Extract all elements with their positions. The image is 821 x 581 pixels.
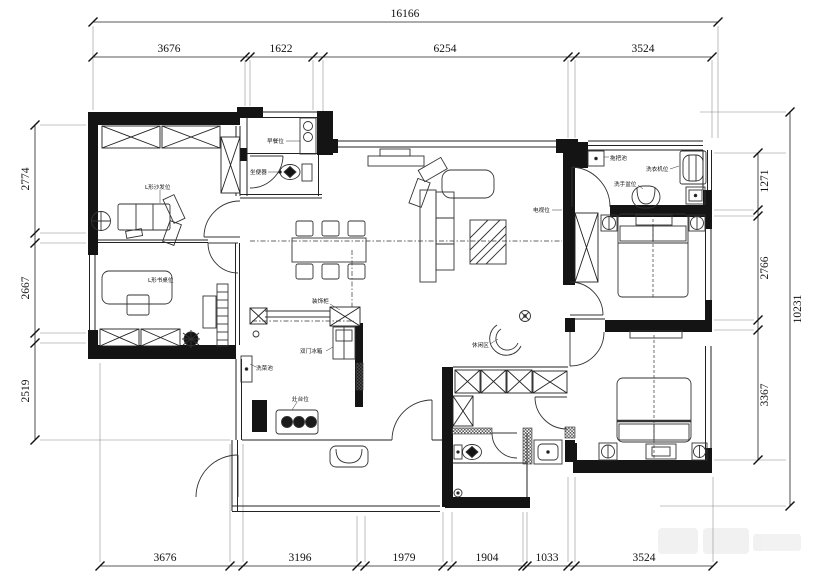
label-tv: 电视位 — [533, 206, 550, 214]
dim-right-1: 1271 — [759, 169, 771, 192]
dryer — [686, 187, 705, 204]
bed-1 — [618, 214, 688, 297]
laundry-basin — [632, 186, 660, 208]
shower-drain — [454, 489, 462, 497]
dim-top-3: 6254 — [434, 43, 457, 55]
dining-table-set — [292, 221, 366, 279]
floor-plan-canvas: 16166 3676 1622 6254 3524 2774 2667 2519… — [0, 0, 821, 581]
dim-top-2: 1622 — [270, 43, 293, 55]
dim-right-total: 10231 — [792, 294, 804, 323]
kitchen-counter — [265, 311, 330, 317]
closet-box — [481, 370, 506, 393]
leisure-chair — [490, 325, 521, 355]
fridge — [333, 327, 355, 359]
floor-plan: 16166 3676 1622 6254 3524 2774 2667 2519… — [0, 0, 821, 581]
windows-and-partitions — [90, 112, 712, 512]
toilet-fixture-2 — [454, 445, 482, 460]
rug — [470, 220, 506, 264]
dimension-bottom: 3676 3196 1979 1904 1033 3524 — [96, 552, 718, 571]
dim-top-4: 3524 — [632, 43, 655, 55]
wardrobes — [100, 126, 598, 426]
dimension-right: 1271 2766 3367 10231 — [754, 108, 805, 511]
dim-top-total: 16166 — [391, 8, 420, 20]
door-balcony-tr — [572, 167, 610, 207]
label-breakfast: 早餐位 — [267, 137, 284, 145]
wardrobe-box — [100, 329, 139, 346]
bathroom-sink — [534, 440, 562, 464]
closet-box — [533, 371, 567, 393]
bookshelf — [217, 284, 228, 346]
door-corridor — [535, 397, 567, 429]
bed-2 — [617, 335, 691, 458]
bench — [646, 444, 676, 459]
label-veg-sink: 洗菜池 — [256, 364, 273, 372]
wardrobe-box — [141, 329, 180, 346]
dim-top-1: 3676 — [158, 43, 181, 55]
dimension-left: 2774 2667 2519 — [20, 121, 40, 445]
decor-cabinet-box — [330, 307, 360, 326]
walls — [88, 107, 712, 508]
round-table — [92, 212, 111, 231]
door-bedroom1 — [570, 282, 603, 315]
low-cabinet — [630, 331, 682, 338]
dimension-top: 16166 3676 1622 6254 3524 — [89, 8, 723, 62]
dim-left-2: 2667 — [20, 276, 32, 299]
toilet-fixture — [279, 164, 312, 181]
dim-right-3: 3367 — [759, 383, 771, 406]
door-bedroom2 — [570, 332, 604, 366]
label-sofa: L形沙发位 — [145, 183, 171, 191]
dim-bot-4: 1904 — [476, 552, 499, 564]
dim-bot-5: 1033 — [536, 552, 559, 564]
label-mop-pool: 拖把池 — [610, 154, 627, 162]
label-fridge: 双门冰箱 — [300, 347, 323, 355]
closet-box — [507, 370, 532, 393]
closet-box — [453, 396, 473, 426]
dim-bot-3: 1979 — [393, 552, 416, 564]
cabinet-box — [250, 308, 267, 324]
label-basin: 洗手盆位 — [614, 180, 637, 188]
watermark — [658, 528, 801, 554]
side-table — [203, 296, 216, 328]
closet-box — [455, 370, 480, 393]
dimension-extension-lines — [40, 26, 786, 562]
balcony-basin — [330, 446, 368, 467]
nightstand — [601, 215, 617, 231]
dim-bot-2: 3196 — [289, 552, 312, 564]
wardrobe-bedroom1 — [575, 213, 598, 282]
dim-right-2: 2766 — [759, 256, 771, 279]
dim-left-3: 2519 — [20, 379, 32, 402]
nightstand — [599, 443, 617, 460]
dim-bot-1: 3676 — [154, 552, 177, 564]
label-desk: L形书桌位 — [148, 276, 174, 284]
door-room-b — [208, 243, 238, 273]
stove — [276, 410, 318, 434]
wardrobe-box — [162, 126, 220, 148]
label-decor-cabinet: 装饰柜 — [312, 297, 329, 305]
desk-chair — [127, 295, 149, 315]
l-sofa — [118, 195, 185, 246]
desk — [102, 271, 172, 304]
label-stove: 灶台位 — [292, 395, 309, 403]
nightstand — [689, 215, 705, 231]
nightstand — [692, 443, 707, 460]
door-bathroom — [492, 433, 517, 458]
label-washer: 洗衣机位 — [646, 165, 669, 173]
label-leisure: 休闲区 — [472, 341, 489, 349]
tv-console — [368, 149, 424, 166]
label-toilet: 坐便器 — [250, 168, 267, 176]
wardrobe-box — [102, 126, 160, 148]
washing-machine — [680, 151, 706, 184]
dim-bot-6: 3524 — [633, 552, 656, 564]
door-living-balcony — [392, 400, 432, 440]
breakfast-counter — [300, 118, 316, 154]
wardrobe-box — [221, 137, 240, 193]
kitchen-sink — [241, 331, 259, 382]
mop-pool-fixture — [588, 151, 604, 166]
fan-symbol — [520, 311, 531, 322]
dim-left-1: 2774 — [20, 167, 32, 190]
door-room-a — [204, 201, 240, 237]
